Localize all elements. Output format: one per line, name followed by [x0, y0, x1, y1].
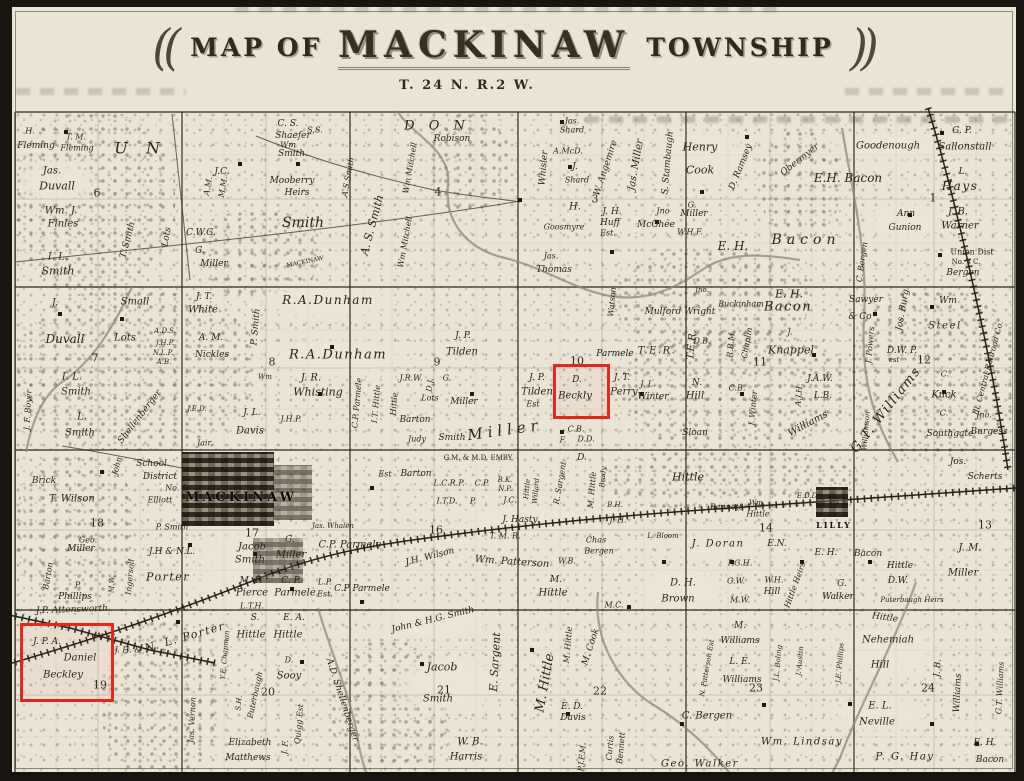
- parcel-label: Elizabeth: [229, 738, 272, 748]
- house-marker: [300, 660, 304, 664]
- parcel-label: Geo. Walker: [661, 759, 739, 770]
- parcel-label: Thomas: [536, 265, 572, 275]
- parcel-label: Southgate: [927, 429, 974, 439]
- parcel-label: A.D.S.: [154, 327, 176, 335]
- house-marker: [938, 253, 942, 257]
- parcel-label: C.B.: [568, 425, 585, 434]
- parcel-label: L.T.H.: [240, 602, 264, 611]
- parcel-label: J. Doran: [692, 539, 745, 550]
- parcel-label: Hittle: [273, 630, 302, 641]
- parcel-label: D.W.: [888, 576, 908, 586]
- parcel-label: Sooy: [277, 671, 302, 682]
- parcel-label: Est.: [600, 229, 616, 238]
- parcel-label: Hill: [686, 391, 704, 402]
- parcel-label: J. B.: [932, 659, 944, 678]
- parcel-label: Robison: [434, 134, 471, 144]
- section-number: 4: [435, 186, 442, 199]
- road-line: [172, 114, 190, 280]
- parcel-label: E. H.: [814, 548, 837, 558]
- parcel-label: J. Hasty: [502, 515, 537, 525]
- section-number: 1: [930, 192, 937, 205]
- parcel-label: W.H.F.: [677, 228, 703, 237]
- section-number: 11: [753, 356, 767, 369]
- parcel-label: Porter: [146, 571, 190, 584]
- parcel-label: Chas: [586, 536, 606, 545]
- parcel-label: Duvall: [39, 180, 75, 193]
- house-marker: [848, 702, 852, 706]
- parcel-label: W.H.: [765, 576, 784, 585]
- section-number: 23: [749, 682, 763, 695]
- parcel-label: J. R.: [301, 373, 321, 384]
- parcel-label: J.H.P.: [156, 339, 174, 347]
- parcel-label: Brick: [32, 476, 56, 486]
- house-marker: [560, 430, 564, 434]
- parcel-label: Fleming: [17, 141, 54, 151]
- parcel-label: Davis: [236, 426, 264, 437]
- section-number: 3: [592, 193, 599, 206]
- parcel-label: Lots: [421, 394, 438, 403]
- parcel-label: Bacon: [976, 755, 1004, 765]
- parcel-label: Miller: [67, 544, 94, 554]
- parcel-label: C.P.: [475, 479, 490, 488]
- house-marker: [296, 162, 300, 166]
- house-marker: [940, 131, 944, 135]
- parcel-label: Hays: [942, 179, 979, 193]
- parcel-label: Hittle: [746, 510, 769, 519]
- parcel-label: S.S.: [307, 126, 322, 135]
- parcel-label: C.: [941, 370, 949, 379]
- parcel-label: C.: [940, 409, 948, 418]
- parcel-label: J.: [572, 162, 578, 172]
- parcel-label: J.: [52, 298, 58, 309]
- parcel-label: F.: [560, 436, 567, 445]
- parcel-label: J. P.: [529, 373, 545, 383]
- parcel-label: Ann: [897, 209, 915, 219]
- parcel-label: P. Smith: [156, 523, 189, 532]
- house-marker: [360, 600, 364, 604]
- section-number: 24: [921, 682, 935, 695]
- house-marker: [518, 198, 522, 202]
- title-subtitle: T. 24 N. R.2 W.: [0, 78, 979, 93]
- parcel-label: Mulford Wright: [645, 307, 716, 317]
- parcel-label: C. S.: [278, 119, 299, 129]
- parcel-label: Jas.: [544, 252, 559, 261]
- parcel-label: Barton: [400, 469, 431, 479]
- house-marker: [930, 722, 934, 726]
- parcel-label: Hill: [871, 660, 889, 671]
- parcel-label: A.B.: [157, 358, 172, 366]
- title-name: MACKINAW: [338, 24, 630, 70]
- parcel-label: Goosmyre: [544, 223, 585, 232]
- parcel-label: Burgess: [970, 427, 1007, 437]
- parcel-label: Miller: [276, 550, 307, 561]
- parcel-label: Neville: [859, 717, 895, 728]
- parcel-label: D. H.: [670, 578, 696, 589]
- parcel-label: Sawyer: [849, 295, 883, 305]
- parcel-label: Parmele: [274, 588, 316, 599]
- parcel-label: T.E.R.: [638, 346, 677, 357]
- parcel-label: D.W. P.: [887, 346, 917, 356]
- parcel-label: Hittle: [672, 471, 704, 484]
- parcel-label: R.A.Dunham: [289, 348, 387, 363]
- section-number: 16: [429, 524, 443, 537]
- parcel-label: J.E.D.: [187, 405, 206, 413]
- house-marker: [420, 662, 424, 666]
- parcel-label: G. P.: [952, 126, 972, 136]
- parcel-label: J. T.: [614, 373, 630, 383]
- parcel-label: Shaefer: [275, 131, 311, 141]
- parcel-label: Smith: [235, 555, 265, 566]
- parcel-label: Hittle: [887, 561, 913, 571]
- parcel-label: Kuck: [931, 390, 956, 401]
- parcel-label: Bennett: [710, 503, 742, 512]
- parcel-label: L.B.: [814, 391, 832, 401]
- parcel-label: B.K.: [498, 476, 513, 484]
- parcel-label: Tilden: [521, 387, 553, 398]
- parcel-label: Warner: [941, 221, 978, 232]
- parcel-label: Tilden: [446, 347, 478, 358]
- parcel-label: J.R.W.: [399, 374, 422, 383]
- house-marker: [700, 190, 704, 194]
- house-marker: [627, 605, 631, 609]
- parcel-label: Winter: [637, 392, 668, 402]
- parcel-label: Phillips: [58, 592, 92, 602]
- parcel-label: A.McD.: [553, 147, 583, 156]
- parcel-label: Smith: [65, 428, 95, 439]
- parcel-label: Mooberry: [270, 176, 315, 186]
- parcel-label: Jas.: [43, 166, 61, 177]
- parcel-label: Cook: [686, 164, 714, 177]
- parcel-label: C. P.: [281, 576, 300, 586]
- parcel-label: Brown: [661, 594, 694, 605]
- parcel-label: Barton: [399, 415, 430, 425]
- parcel-label: U: [114, 139, 127, 158]
- parcel-label: Puterbaugh Heirs: [880, 596, 943, 604]
- parcel-label: Union Dist: [950, 248, 993, 257]
- parcel-label: Est: [526, 400, 539, 409]
- section-number: 14: [759, 522, 773, 535]
- house-marker: [238, 162, 242, 166]
- parcel-label: E. H.: [718, 239, 749, 253]
- parcel-label: J. L.: [640, 380, 656, 389]
- parcel-label: Scherts: [968, 472, 1003, 482]
- parcel-label: Hittle: [538, 588, 567, 599]
- parcel-label: Goodenough: [856, 141, 920, 152]
- parcel-label: Shard: [565, 176, 589, 185]
- town-mackinaw-block: [182, 452, 274, 526]
- village-lilly-block: [816, 487, 848, 517]
- parcel-label: I.T.D.: [436, 497, 457, 506]
- parcel-label: E. A.: [283, 613, 305, 623]
- parcel-label: Wm: [258, 373, 272, 381]
- section-number: 13: [978, 519, 992, 532]
- parcel-label: Pierce: [236, 588, 268, 599]
- parcel-label: D.D.: [577, 435, 594, 444]
- parcel-label: G.M. & M.D. EMBY: [444, 454, 513, 462]
- parcel-label: Wm: [939, 296, 957, 306]
- parcel-label: J.H.P.: [281, 415, 302, 424]
- parcel-label: Finles: [48, 219, 79, 230]
- map-canvas: MACKINAW LILLY H.FlemingT. M.FlemingJas.…: [0, 0, 1024, 781]
- parcel-label: S.H.: [234, 695, 243, 711]
- house-marker: [873, 312, 877, 316]
- parcel-label: Jas.: [565, 117, 580, 126]
- parcel-label: Jacob: [238, 542, 266, 553]
- parcel-label: Smith.: [278, 149, 308, 159]
- parcel-label: D O N: [404, 119, 470, 134]
- parcel-label: Wm.: [749, 499, 765, 507]
- parcel-label: M.: [550, 575, 562, 585]
- parcel-label: Perry: [610, 387, 637, 398]
- house-marker: [662, 560, 666, 564]
- parcel-label: J. L.: [243, 408, 260, 418]
- road-line: [15, 201, 520, 262]
- village-lilly-label: LILLY: [803, 520, 865, 530]
- parcel-label: L.P.: [318, 578, 332, 587]
- title-prefix: MAP OF: [190, 33, 322, 62]
- parcel-label: T. Wilson: [49, 494, 95, 505]
- parcel-label: District: [143, 472, 177, 482]
- parcel-label: L.: [959, 167, 968, 177]
- parcel-label: Miller: [948, 568, 979, 579]
- parcel-label: Lots: [114, 333, 136, 344]
- house-marker: [370, 486, 374, 490]
- parcel-label: I. L.: [48, 252, 68, 263]
- parcel-label: C.P. Parmele: [318, 540, 381, 551]
- parcel-label: D.: [285, 656, 294, 665]
- parcel-label: Nehemiah: [862, 635, 914, 646]
- parcel-label: M.W.: [107, 575, 117, 593]
- parcel-label: Nickles: [195, 350, 229, 360]
- title-suffix: TOWNSHIP: [646, 33, 833, 62]
- parcel-label: G.: [195, 246, 205, 256]
- parcel-label: Bergen: [946, 268, 979, 278]
- parcel-label: Smith: [42, 265, 75, 278]
- parcel-label: Hill: [764, 587, 780, 597]
- parcel-label: J. M.: [958, 543, 981, 554]
- parcel-label: School.: [136, 459, 170, 469]
- house-marker: [530, 648, 534, 652]
- highlight-daniel-beckley: [20, 623, 114, 702]
- parcel-label: B.H.: [607, 501, 623, 509]
- parcel-label: Small: [121, 297, 150, 308]
- parcel-label: Steel: [928, 321, 961, 332]
- parcel-label: L. E.: [729, 657, 750, 667]
- house-marker: [762, 703, 766, 707]
- parcel-label: Est.: [317, 590, 333, 599]
- parcel-label: J. B.: [948, 207, 968, 218]
- parcel-label: M.C.: [604, 601, 623, 610]
- parcel-label: L.C.R.P.: [433, 479, 464, 488]
- title-flourish-left: ((: [152, 23, 174, 71]
- section-number: 21: [437, 684, 451, 697]
- parcel-label: E.D.D.: [797, 492, 820, 500]
- section-number: 20: [261, 686, 275, 699]
- section-number: 9: [434, 356, 441, 369]
- parcel-label: R.A.Dunham: [282, 293, 374, 307]
- parcel-label: Smith: [282, 215, 324, 231]
- parcel-label: Bacon: [764, 300, 812, 315]
- parcel-label: A. M.: [199, 333, 223, 343]
- parcel-label: No. 4 C.: [952, 258, 981, 266]
- house-marker: [100, 470, 104, 474]
- parcel-label: J. H. &: [115, 646, 142, 655]
- house-marker: [745, 135, 749, 139]
- title-flourish-right: )): [850, 23, 872, 71]
- parcel-label: Duvall: [46, 332, 85, 346]
- parcel-label: & Co: [848, 312, 871, 322]
- parcel-label: Gunion: [889, 223, 922, 233]
- parcel-label: Est: [378, 470, 391, 479]
- parcel-label: D.: [577, 453, 587, 463]
- parcel-label: J. H.: [602, 207, 621, 217]
- parcel-label: Sloan: [682, 428, 708, 438]
- parcel-label: E.N.: [767, 539, 787, 549]
- parcel-label: J.: [787, 328, 792, 337]
- parcel-label: G.: [837, 579, 847, 589]
- parcel-label: N: [146, 139, 160, 158]
- parcel-label: C.P Parmele: [334, 584, 390, 594]
- parcel-label: W. B.: [457, 737, 482, 748]
- parcel-label: G.W.: [727, 577, 745, 586]
- parcel-label: H.: [25, 127, 35, 136]
- house-marker: [560, 120, 564, 124]
- parcel-label: Jno.: [695, 286, 709, 294]
- parcel-label: Walker: [822, 592, 854, 602]
- parcel-label: Parmele: [596, 349, 633, 359]
- parcel-label: Bacon: [772, 232, 841, 248]
- parcel-label: Wm. J.: [45, 206, 78, 217]
- parcel-label: Whisting: [293, 386, 343, 399]
- parcel-label: Jno.: [976, 411, 992, 420]
- parcel-label: P.G.H.: [728, 559, 752, 568]
- parcel-label: I. L.: [62, 372, 82, 383]
- parcel-label: Knappel: [768, 344, 814, 357]
- parcel-label: H.: [569, 202, 581, 213]
- parcel-label: Miller: [680, 209, 707, 219]
- parcel-label: Williams: [720, 636, 759, 646]
- house-marker: [868, 560, 872, 564]
- parcel-label: Huff: [600, 218, 620, 228]
- parcel-label: Williams: [952, 673, 964, 713]
- parcel-label: C. Bergen: [682, 711, 732, 722]
- parcel-label: E. D.: [561, 702, 583, 712]
- section-number: 6: [94, 187, 101, 200]
- parcel-label: J. F.: [280, 739, 290, 754]
- section-number: 17: [245, 527, 259, 540]
- parcel-label: est: [889, 356, 900, 364]
- parcel-label: N.: [692, 378, 702, 388]
- parcel-label: Hittle: [236, 630, 265, 641]
- plat-map-page: (( MAP OF MACKINAW TOWNSHIP )) T. 24 N. …: [0, 0, 1024, 781]
- house-marker: [58, 312, 62, 316]
- parcel-label: J.A.W.: [807, 374, 833, 384]
- parcel-label: Buckinham: [718, 300, 764, 309]
- parcel-label: Jas. Whalen: [312, 522, 354, 530]
- parcel-label: White: [188, 305, 218, 316]
- house-marker: [120, 317, 124, 321]
- parcel-label: Jair.: [197, 439, 213, 448]
- town-mackinaw-label: MACKINAW: [165, 490, 317, 505]
- parcel-label: Smith: [61, 387, 91, 398]
- parcel-label: P.: [75, 581, 81, 590]
- section-number: 7: [92, 352, 99, 365]
- parcel-label: Henry: [683, 141, 718, 154]
- parcel-label: Wm. Lindsay: [761, 737, 843, 748]
- section-number: 18: [90, 517, 104, 530]
- parcel-label: Miller: [200, 259, 227, 269]
- parcel-label: M.W.: [730, 596, 750, 605]
- parcel-label: G.: [443, 374, 452, 383]
- parcel-label: J. H.: [609, 516, 626, 525]
- parcel-label: C.W.G.: [186, 228, 216, 238]
- parcel-label: J. T.: [196, 292, 212, 302]
- parcel-label: Miller: [450, 397, 477, 407]
- parcel-label: E. H.: [973, 738, 996, 748]
- parcel-label: P. G. Hay: [876, 752, 935, 763]
- parcel-label: Jos.: [950, 457, 967, 467]
- parcel-label: L. Bloom: [647, 532, 679, 540]
- house-marker: [470, 392, 474, 396]
- house-marker: [680, 722, 684, 726]
- parcel-label: Heirs: [285, 188, 310, 198]
- parcel-label: J. P.: [455, 331, 471, 341]
- parcel-label: Fleming: [60, 144, 93, 153]
- house-marker: [740, 392, 744, 396]
- map-title-block: (( MAP OF MACKINAW TOWNSHIP )): [0, 24, 1024, 70]
- parcel-label: N.P.: [498, 485, 511, 493]
- parcel-label: Bergen: [584, 547, 613, 556]
- section-number: 8: [269, 356, 276, 369]
- parcel-label: C.B.: [729, 384, 746, 393]
- parcel-label: J.C.: [503, 496, 517, 505]
- parcel-label: P.: [470, 497, 476, 506]
- parcel-label: J.H & N.L.: [149, 547, 195, 557]
- section-number: 12: [917, 354, 931, 367]
- parcel-label: Bacon: [854, 549, 882, 559]
- parcel-label: N.L.P.: [153, 349, 173, 357]
- house-marker: [176, 620, 180, 624]
- parcel-label: Jacob: [427, 661, 458, 674]
- parcel-label: G.: [285, 535, 295, 545]
- parcel-label: Jno: [656, 207, 669, 216]
- parcel-label: T. M. R.: [489, 532, 520, 541]
- highlight-d-beckly: [553, 364, 610, 419]
- parcel-label: S.: [251, 613, 260, 623]
- parcel-label: Sallonstall: [938, 142, 991, 153]
- parcel-label: W.B.: [558, 557, 576, 566]
- house-marker: [610, 250, 614, 254]
- parcel-label: Shard: [560, 126, 584, 135]
- parcel-label: T. M.: [66, 133, 86, 142]
- parcel-label: McGhee: [637, 220, 675, 230]
- parcel-label: Smith: [439, 433, 466, 443]
- parcel-label: M. F.: [240, 576, 263, 586]
- parcel-label: L.: [77, 412, 87, 423]
- section-number: 22: [593, 685, 607, 698]
- parcel-label: Judy: [408, 435, 426, 444]
- parcel-label: M.: [734, 621, 746, 631]
- parcel-label: D.B.: [693, 337, 710, 346]
- house-marker: [930, 305, 934, 309]
- parcel-label: Harris: [450, 752, 483, 763]
- parcel-label: Matthews: [225, 753, 270, 763]
- parcel-label: Davis: [560, 713, 585, 723]
- parcel-label: E.H. Bacon: [814, 171, 882, 185]
- parcel-label: E. L.: [868, 701, 891, 712]
